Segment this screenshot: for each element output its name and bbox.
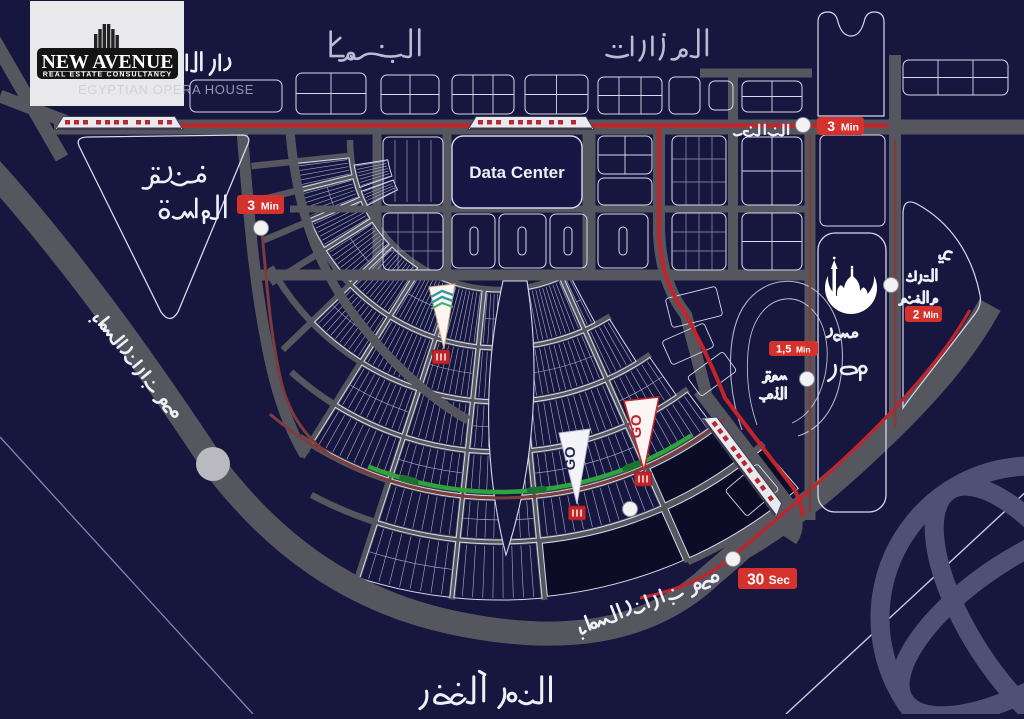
svg-text:Min: Min [261,200,279,212]
svg-text:3: 3 [247,197,255,213]
svg-text:Sec: Sec [769,573,791,587]
svg-text:1,5: 1,5 [776,344,791,356]
svg-text:REAL ESTATE CONSULTANCY: REAL ESTATE CONSULTANCY [43,72,173,79]
svg-text:NEW AVENUE: NEW AVENUE [42,51,174,73]
svg-text:EGYPTIAN OPERA HOUSE: EGYPTIAN OPERA HOUSE [78,82,254,97]
svg-text:GO: GO [562,446,579,470]
svg-text:Min: Min [923,310,939,320]
svg-text:3: 3 [827,118,835,134]
svg-text:2: 2 [913,309,919,321]
svg-text:Min: Min [796,344,811,354]
svg-text:Data Center: Data Center [469,163,565,182]
svg-text:GO: GO [628,414,645,438]
svg-text:Min: Min [841,122,859,134]
svg-text:30: 30 [747,571,764,588]
